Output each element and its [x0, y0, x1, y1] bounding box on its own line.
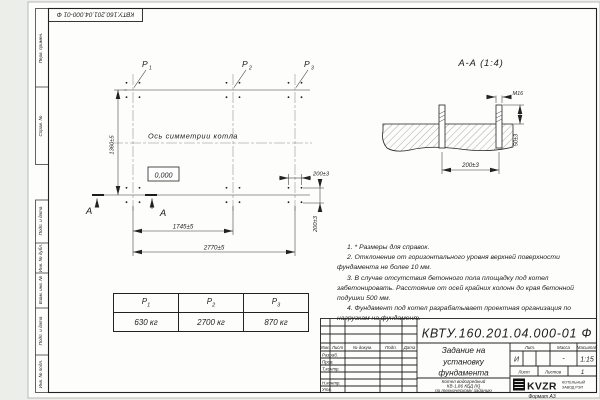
row-utv: Утв.: [322, 387, 332, 392]
dim-protrusion: 50±3: [514, 133, 520, 146]
col-ndokum: № докум.: [353, 345, 372, 350]
doc-number: КВТУ.160.201.04.000-01 Ф: [422, 327, 593, 341]
note-item-2: 2. Отклонение от горизонтального уровня …: [337, 253, 579, 273]
load-point-p3-sub: 3: [311, 66, 314, 72]
logo-text: KVZR: [527, 381, 557, 393]
scale-value: 1:15: [580, 357, 594, 364]
col-data: Дата: [403, 345, 416, 350]
loads-header-p1: P1: [114, 294, 179, 313]
level-mark: 0,000: [148, 167, 179, 181]
col-izm: Изм.: [320, 345, 329, 350]
loads-table: P1 P2 P3 630 кг 2700 кг 870 кг: [113, 293, 309, 332]
col-list: Лист: [331, 345, 344, 350]
col-podp: Подп.: [385, 345, 397, 350]
company-line-1: КОТЕЛЬНЫЙ: [562, 381, 585, 385]
dim-bolt-spacing-h: 200±3: [312, 172, 330, 178]
margin-field-label: Подп. и дата: [38, 316, 43, 345]
load-point-p1-sub: 1: [149, 66, 152, 72]
loads-value-p2: 2700 кг: [179, 313, 244, 332]
load-point-p2-sub: 2: [248, 66, 252, 72]
product-line-3: по техническому заданию: [435, 388, 492, 393]
section-title: А-А (1:4): [457, 58, 503, 69]
row-nkontr: Н.контр.: [322, 381, 341, 386]
margin-field-label: Подп. и дата: [38, 206, 43, 235]
company-line-2: ЗАВОД РЭП: [562, 385, 583, 389]
title-line-3: фундамента: [438, 369, 489, 378]
margin-field-label: Перв. примен.: [38, 33, 43, 64]
loads-header-p3: P3: [244, 294, 309, 313]
note-item-4: 4. Фундамент под котел разрабатывает про…: [337, 304, 579, 324]
row-prov: Пров.: [322, 360, 334, 365]
drawing-canvas: Перв. примен. Справ. № Подп. и дата Инв.…: [0, 0, 600, 400]
sheets-value: 1: [581, 370, 584, 376]
margin-field-label: Инв. № дубл.: [38, 244, 43, 272]
loads-value-p1: 630 кг: [114, 313, 179, 332]
dim-span-mid: 1745±5: [173, 224, 194, 231]
section-letter-a2: А: [159, 208, 166, 219]
note-item-3: 3. В случае отсутствия бетонного пола пл…: [337, 274, 579, 305]
section-letter-a1: А: [85, 206, 92, 217]
dim-section-bolt-spacing: 200±3: [461, 163, 479, 169]
margin-field-label: Справ. №: [38, 116, 43, 137]
load-point-p2: P: [242, 59, 248, 69]
level-mark-value: 0,000: [155, 171, 173, 180]
foundation-block: [383, 124, 514, 151]
margin-field-label: Взам. инв. №: [38, 276, 43, 304]
title-line-2: установку: [442, 358, 485, 367]
load-point-p3: P: [304, 59, 310, 69]
row-tkontr: Т.контр.: [322, 367, 340, 372]
note-item-1: 1. * Размеры для справок.: [337, 243, 579, 253]
symmetry-axis-label: Ось симметрии котла: [148, 132, 238, 141]
notes-block: 1. * Размеры для справок. 2. Отклонение …: [337, 243, 579, 325]
loads-value-p3: 870 кг: [244, 313, 309, 332]
format-label: Формат А3: [528, 394, 556, 400]
margin-field-label: Инв. № подл.: [38, 360, 43, 389]
lit-header: Лит.: [524, 345, 535, 350]
loads-header-p2: P2: [179, 294, 244, 313]
dim-bolt-spacing-v: 200±3: [313, 215, 319, 233]
mass-header: Масса: [557, 345, 571, 350]
thread-label: M16: [513, 91, 525, 97]
scale-header: Масштаб: [577, 345, 598, 350]
drawing-sheet: Перв. примен. Справ. № Подп. и дата Инв.…: [0, 0, 600, 400]
dim-span-total: 2770±5: [203, 245, 225, 252]
dim-height: 1360±5: [110, 135, 116, 155]
top-doc-number: КВТУ.160.201.04.000-01 Ф: [57, 11, 134, 18]
sheets-header: Листов: [544, 369, 562, 374]
load-point-p1: P: [142, 59, 148, 69]
sheet-header: Лист: [517, 369, 530, 374]
title-line-1: Задание на: [442, 346, 486, 355]
row-razrab: Разраб.: [322, 353, 338, 358]
